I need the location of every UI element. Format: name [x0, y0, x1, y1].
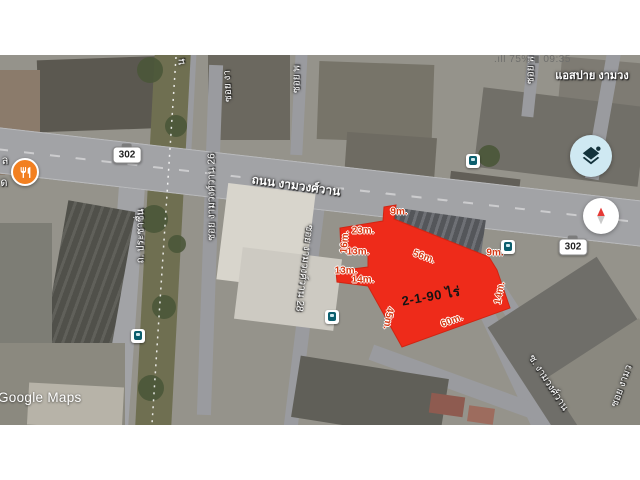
route-badge: 302	[113, 147, 142, 164]
bus-stop-icon[interactable]	[466, 154, 480, 168]
layers-button[interactable]	[570, 135, 612, 177]
screenshot: ถนน งามวงศ์วานถ. ประชาชื่นซอย งามวงศ์วาน…	[0, 0, 640, 480]
google-maps-watermark: Google Maps	[0, 390, 82, 405]
letterbox-bottom	[0, 425, 640, 480]
bus-stop-icon[interactable]	[501, 240, 515, 254]
restaurant-pin[interactable]	[11, 158, 39, 186]
letterbox-top	[0, 0, 640, 55]
compass-button[interactable]	[583, 198, 619, 234]
route-badge: 302	[559, 239, 588, 256]
layers-icon	[580, 145, 602, 167]
bus-stop-icon[interactable]	[131, 329, 145, 343]
status-bar-text: .ıll 75% ▮ 09:35	[494, 54, 571, 65]
bus-stop-icon[interactable]	[325, 310, 339, 324]
compass-needle-icon	[591, 206, 611, 226]
fork-knife-icon	[19, 166, 32, 179]
